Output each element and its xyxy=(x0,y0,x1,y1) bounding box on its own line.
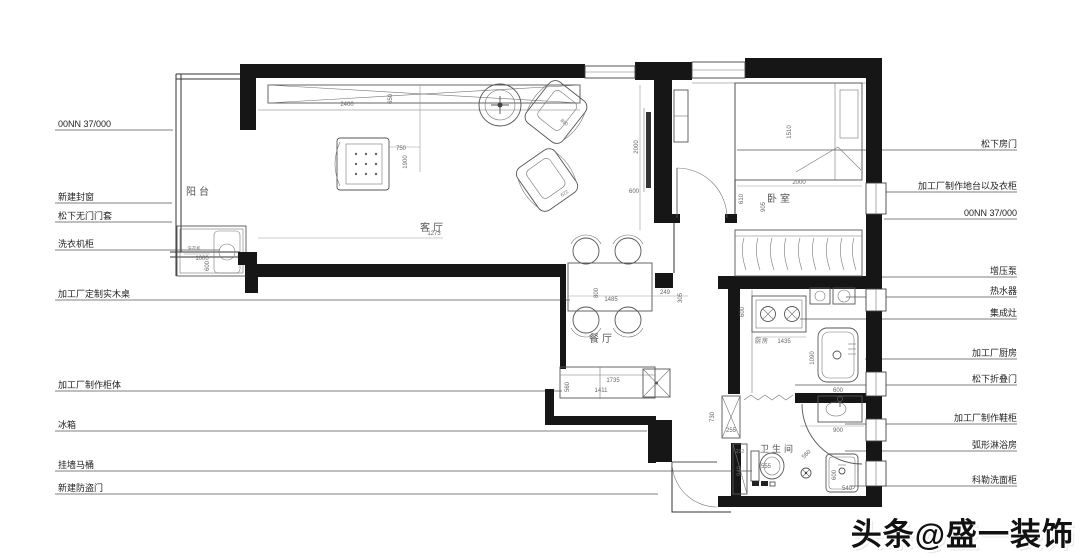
dining-room: 餐厅 800 1485 249 305 1735 1411 560 xyxy=(560,235,688,398)
living-room: 客厅 2400 650 750 1900 xyxy=(258,76,651,238)
floor-plan-canvas: 00NN 37/000 新建封窗 松下无门门套 洗衣机柜 加工厂定制实木桌 加工… xyxy=(0,0,1080,558)
floor-drain-symbol xyxy=(801,468,811,478)
bedroom-door xyxy=(677,168,727,218)
bedroom: 卧室 1510 2000 610 905 xyxy=(674,83,862,276)
annotation-factory-cabinet: 加工厂制作柜体 xyxy=(55,379,562,391)
dimension-text: 555 xyxy=(761,464,772,470)
dimension-text: 600 xyxy=(629,189,640,195)
window-symbol xyxy=(866,289,886,311)
annotation-custom-wood-table: 加工厂定制实木桌 xyxy=(55,288,570,300)
wall-segment xyxy=(728,289,740,394)
annotation-label: 加工厂定制实木桌 xyxy=(58,288,130,299)
annotation-label: 松下房门 xyxy=(981,138,1017,149)
wall-segment xyxy=(718,276,866,289)
annotation-label: 加工厂制作柜体 xyxy=(58,379,121,390)
dimension-text: 900 xyxy=(833,428,844,434)
annotation-label: 新建封窗 xyxy=(58,191,94,202)
kitchen-sink xyxy=(818,328,858,382)
wall-segment xyxy=(245,264,258,293)
dimension-text: 600 xyxy=(205,260,211,271)
dimension-text: 1510 xyxy=(787,125,793,139)
floor-plan-page: 00NN 37/000 新建封窗 松下无门门套 洗衣机柜 加工厂定制实木桌 加工… xyxy=(0,0,1080,558)
annotation-label: 热水器 xyxy=(990,285,1017,296)
wardrobe xyxy=(735,230,862,276)
dimension-text: 600 xyxy=(832,469,838,480)
dimension-text: 2400 xyxy=(340,102,354,108)
balcony: 阳台 洗衣机 1000 600 xyxy=(170,74,246,276)
annotation-integrated-stove: 集成灶 xyxy=(800,307,1017,319)
room-label-bathroom: 卫生间 xyxy=(760,443,796,454)
annotation-label: 洗衣机柜 xyxy=(58,238,94,249)
curved-shower-arc xyxy=(802,404,862,464)
dimension-text: 305 xyxy=(678,292,684,303)
annotation-security-door: 新建防盗门 xyxy=(55,482,658,494)
wall-segment xyxy=(560,277,566,369)
dimension-text: 800 xyxy=(594,287,600,298)
bed: 1510 xyxy=(735,83,862,180)
dimension-text: 560 xyxy=(565,381,571,392)
dimension-text: 255 xyxy=(726,428,737,434)
annotation-label: 00NN 37/000 xyxy=(964,208,1017,218)
dimension-text: 650 xyxy=(388,93,394,104)
wall-segment xyxy=(238,252,257,265)
fridge xyxy=(643,369,670,397)
dimension-text: 940 xyxy=(737,465,743,476)
annotation-label: 集成灶 xyxy=(990,307,1017,318)
annotation-platform-wardrobe: 加工厂制作地台以及衣柜 xyxy=(884,180,1017,192)
annotation-label: 00NN 37/000 xyxy=(58,119,111,129)
window-symbol xyxy=(866,461,886,486)
wall-segment xyxy=(240,64,585,78)
window-symbol xyxy=(866,419,886,441)
dimension-text: 249 xyxy=(660,290,671,296)
dining-chair xyxy=(571,235,601,264)
water-heater xyxy=(833,288,855,304)
dimension-text: 560 xyxy=(801,449,813,461)
annotation-window-spec-right: 00NN 37/000 xyxy=(884,208,1017,219)
wall-segment xyxy=(545,416,656,425)
door-arc xyxy=(677,168,727,218)
dimension-text: 730 xyxy=(710,411,716,422)
dimension-text: 2000 xyxy=(634,140,640,154)
wall-segment xyxy=(718,496,866,507)
wall-segment xyxy=(545,389,554,419)
window-symbol xyxy=(866,183,886,214)
dimension-text: 600 xyxy=(833,388,844,394)
dimension-text: 1090 xyxy=(810,351,816,365)
annotation-window-spec: 00NN 37/000 xyxy=(55,119,173,130)
sideboard-cabinet: 1735 1411 560 xyxy=(560,367,655,398)
dining-chair xyxy=(613,235,643,264)
annotation-new-sealed-window: 新建封窗 xyxy=(55,191,172,203)
dimension-text: 750 xyxy=(396,146,407,152)
kitchen: 600 厨房 1435 1090 600 xyxy=(740,288,858,394)
annotation-label: 增压泵 xyxy=(990,265,1017,276)
annotation-label: 松下无门门套 xyxy=(58,210,112,221)
nightstand xyxy=(674,90,688,142)
annotation-doorless-frame: 松下无门门套 xyxy=(55,210,172,222)
dimension-text: 905 xyxy=(761,201,767,212)
annotation-label: 冰箱 xyxy=(58,419,76,430)
wall-segment xyxy=(635,62,692,80)
annotation-label: 挂墙马桶 xyxy=(58,459,94,470)
window-symbol xyxy=(866,372,886,396)
stove xyxy=(752,296,806,332)
wall-segment xyxy=(672,214,680,223)
window-symbol xyxy=(692,62,745,78)
entry-door xyxy=(672,462,717,507)
dimension-text: 1485 xyxy=(604,297,618,303)
dimension-text: 610 xyxy=(739,193,745,204)
dimension-text: 540 xyxy=(842,486,853,492)
dimension-text: 1273 xyxy=(427,231,441,237)
window-symbol xyxy=(585,66,635,78)
massage-chair: 750 1900 xyxy=(335,85,420,190)
annotation-label: 加工厂制作鞋柜 xyxy=(954,412,1017,423)
room-label-bedroom: 卧室 xyxy=(767,192,793,205)
dimension-text: 1435 xyxy=(777,339,791,345)
dimension-text: 1900 xyxy=(403,155,409,169)
annotation-wall-hung-toilet: 挂墙马桶 xyxy=(55,459,752,471)
annotation-factory-kitchen: 加工厂厨房 xyxy=(865,347,1017,359)
toilet: 555 xyxy=(751,451,784,486)
annotation-label: 加工厂制作地台以及衣柜 xyxy=(918,180,1017,191)
ceiling-light-symbol xyxy=(479,84,521,126)
wall-segment xyxy=(745,58,880,78)
wall-segment xyxy=(648,423,656,463)
dining-chair xyxy=(613,307,643,337)
booster-pump xyxy=(810,288,830,304)
dimension-text: 860 xyxy=(559,118,569,128)
dimension-text: 1411 xyxy=(595,388,609,394)
annotation-folding-door: 松下折叠门 xyxy=(795,373,1017,385)
dimension-text: 600 xyxy=(740,306,746,317)
room-label-kitchen: 厨房 xyxy=(755,337,769,345)
annotation-label: 新建防盗门 xyxy=(58,482,103,493)
annotation-label: 科勒洗面柜 xyxy=(972,474,1017,485)
washer-label: 洗衣机 xyxy=(187,245,201,252)
tv: 2000 600 xyxy=(629,85,651,230)
wall-segment xyxy=(655,273,673,288)
annotation-label: 加工厂厨房 xyxy=(972,347,1017,358)
shoe-cabinet: 255 xyxy=(722,396,740,438)
dining-chair xyxy=(571,307,601,337)
wall-segment xyxy=(795,393,866,403)
wall-segment-tv-wall xyxy=(654,80,672,223)
dining-table xyxy=(568,263,652,311)
annotation-label: 弧形淋浴房 xyxy=(972,439,1017,450)
annotation-label: 松下折叠门 xyxy=(972,373,1017,384)
watermark: 头条@盛一装饰 xyxy=(851,509,1074,554)
washing-machine-cabinet: 洗衣机 1000 600 xyxy=(177,226,246,276)
sofa-chair xyxy=(511,144,583,216)
room-label-balcony: 阳台 xyxy=(186,185,212,198)
room-label-dining: 餐厅 xyxy=(589,332,615,345)
dimension-text: 1735 xyxy=(606,378,620,384)
dimension-text: 2000 xyxy=(792,180,806,186)
door-arc xyxy=(672,462,717,507)
wall-segment xyxy=(258,264,566,277)
dimension-text: 232 xyxy=(736,449,745,455)
folding-door xyxy=(744,395,793,400)
bathroom: 卫生间 900 560 555 232 940 xyxy=(733,395,864,494)
entry: 255 730 xyxy=(672,396,740,507)
